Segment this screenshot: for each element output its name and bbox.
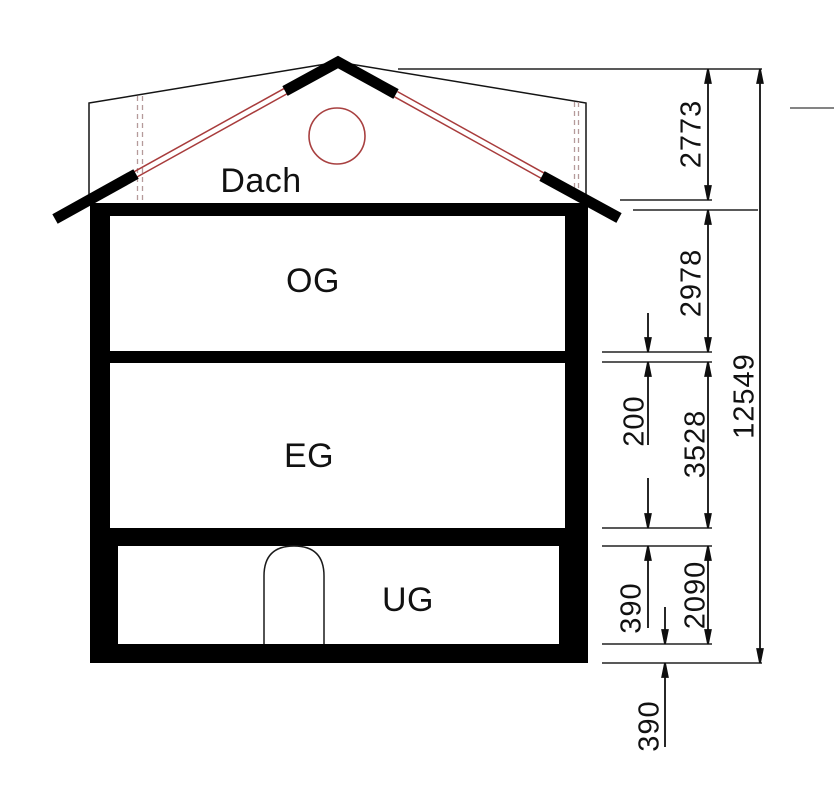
dim-value-total-height: 12549 (731, 353, 760, 439)
arrow-down-eg-slab (645, 514, 651, 528)
arrow-up-og-slab (645, 362, 651, 376)
rafter-line-right-upper (398, 92, 545, 174)
roof-ridge-section (285, 62, 396, 94)
section-drawing-canvas: Dach OG EG UG 2773 2978 200 3528 390 209… (0, 0, 834, 789)
arrow-up-ug (705, 546, 711, 560)
building-section-drawing (0, 0, 834, 789)
rafter-line-right-lower (395, 97, 542, 179)
arrow-up-eg (705, 362, 711, 376)
gable-outline (89, 62, 586, 201)
arrow-down-total (757, 649, 763, 663)
arrow-down-ug (705, 630, 711, 644)
dim-value-og-height: 2978 (678, 249, 707, 318)
attic-circle-vent (309, 108, 365, 164)
arrow-down-eg (705, 514, 711, 528)
arrow-up-roof (705, 69, 711, 83)
dim-value-roof-height: 2773 (678, 100, 707, 169)
arrow-down-ug-slab (662, 630, 668, 644)
dim-value-og-slab: 200 (621, 395, 650, 446)
ug-interior (118, 546, 559, 644)
eaves-slab (90, 203, 588, 216)
label-eg: EG (284, 439, 334, 473)
dim-value-eg-height: 3528 (682, 410, 711, 479)
label-og: OG (286, 264, 340, 298)
arrow-up-og (705, 210, 711, 224)
og-floor-slab (90, 351, 588, 363)
dim-value-ug-slab: 390 (636, 700, 665, 751)
arrow-down-og-slab (645, 338, 651, 352)
arrow-up-eg-slab (645, 546, 651, 560)
dim-value-eg-slab: 390 (618, 582, 647, 633)
label-ug: UG (382, 583, 434, 617)
label-dach: Dach (220, 164, 301, 198)
dim-value-ug-height: 2090 (682, 561, 711, 630)
arrow-up-ug-slab (662, 663, 668, 677)
rafter-line-left-upper (132, 88, 285, 173)
arrow-down-og (705, 338, 711, 352)
ug-door-arch (264, 546, 324, 644)
arrow-down-roof (705, 186, 711, 200)
arrow-up-total (757, 69, 763, 83)
